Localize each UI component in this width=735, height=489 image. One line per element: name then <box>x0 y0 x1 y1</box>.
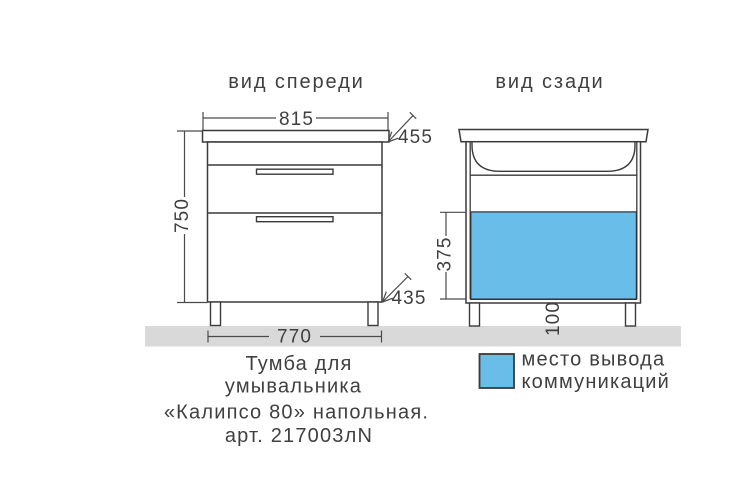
svg-text:770: 770 <box>277 327 312 348</box>
svg-text:750: 750 <box>172 198 193 233</box>
svg-text:вид спереди: вид спереди <box>228 71 365 93</box>
svg-text:435: 435 <box>391 288 426 309</box>
svg-text:место вывода: место вывода <box>522 348 666 370</box>
svg-text:375: 375 <box>435 236 456 271</box>
svg-text:арт. 217003лN: арт. 217003лN <box>225 425 373 447</box>
svg-text:Тумба для: Тумба для <box>245 353 352 375</box>
svg-text:умывальника: умывальника <box>225 376 362 398</box>
svg-text:вид сзади: вид сзади <box>495 71 604 93</box>
svg-text:100: 100 <box>543 301 564 336</box>
svg-text:«Калипсо 80» напольная.: «Калипсо 80» напольная. <box>164 402 429 424</box>
svg-text:коммуникаций: коммуникаций <box>522 371 671 393</box>
svg-text:455: 455 <box>398 127 433 148</box>
svg-text:815: 815 <box>279 109 314 130</box>
